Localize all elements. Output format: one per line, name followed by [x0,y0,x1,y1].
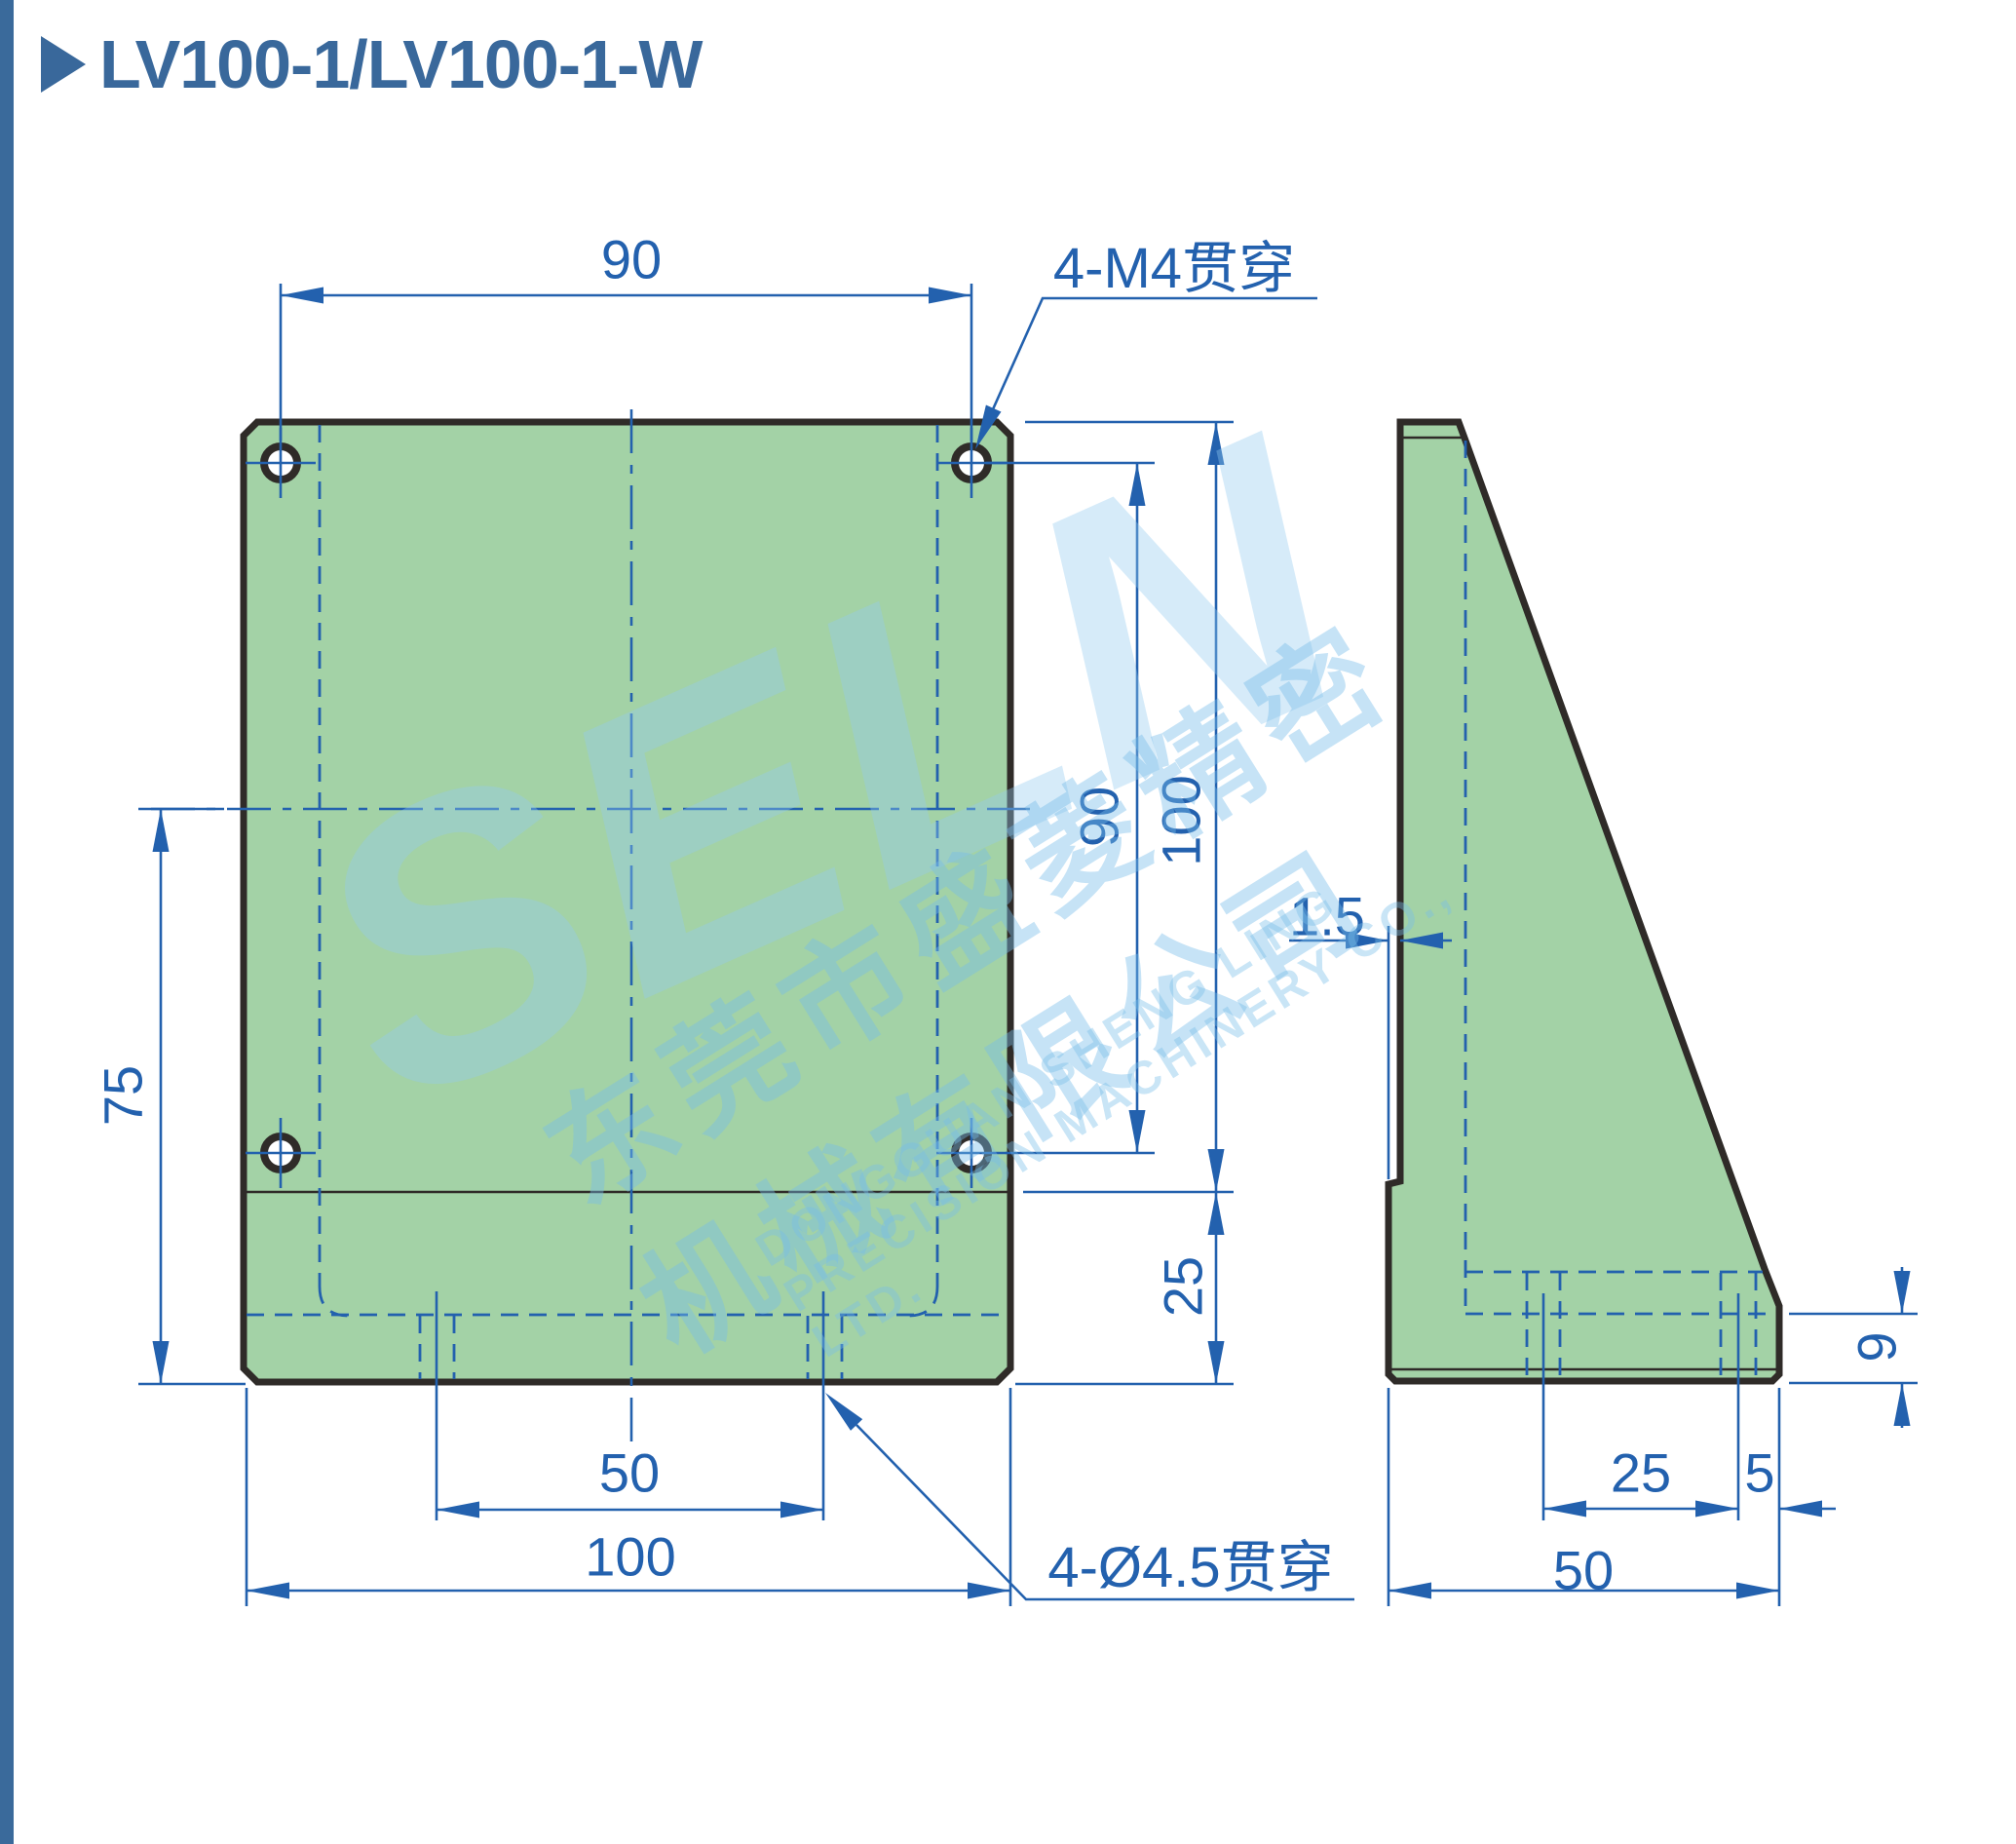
drill-callout-label: 4-Ø4.5贯穿 [1047,1521,1333,1603]
dim-label-side-5: 5 [1744,1441,1774,1505]
dim-left-height [138,809,246,1384]
dim-label-side-1-5: 1.5 [1289,885,1365,948]
m4-callout-leader [975,298,1317,449]
dim-label-side-9: 9 [1845,1331,1909,1362]
front-view [138,284,1354,1606]
dim-label-right-25: 25 [1152,1256,1215,1317]
title-block: LV100-1/LV100-1-W [41,25,702,103]
dim-side-hole-edge [1779,1501,1836,1517]
side-profile-outline [1388,422,1779,1381]
catalog-drawing-page: LV100-1/LV100-1-W [0,0,2016,1844]
title-triangle-icon [41,36,86,93]
dim-label-right-90: 90 [1068,787,1131,847]
dim-label-bottom-100: 100 [585,1525,675,1589]
dim-label-side-25: 25 [1611,1441,1671,1505]
dim-label-bottom-50: 50 [599,1441,660,1505]
technical-drawing [0,0,2016,1844]
m4-callout-label: 4-M4贯穿 [1053,222,1295,304]
side-view [1289,422,1918,1606]
page-title: LV100-1/LV100-1-W [99,25,702,103]
dim-top-hole-span [281,284,971,441]
front-plate-outline [244,422,1010,1382]
dim-label-top-90: 90 [601,228,662,291]
dim-label-left-75: 75 [92,1065,155,1126]
dim-label-side-50: 50 [1553,1539,1614,1602]
dim-label-right-100: 100 [1150,775,1213,865]
